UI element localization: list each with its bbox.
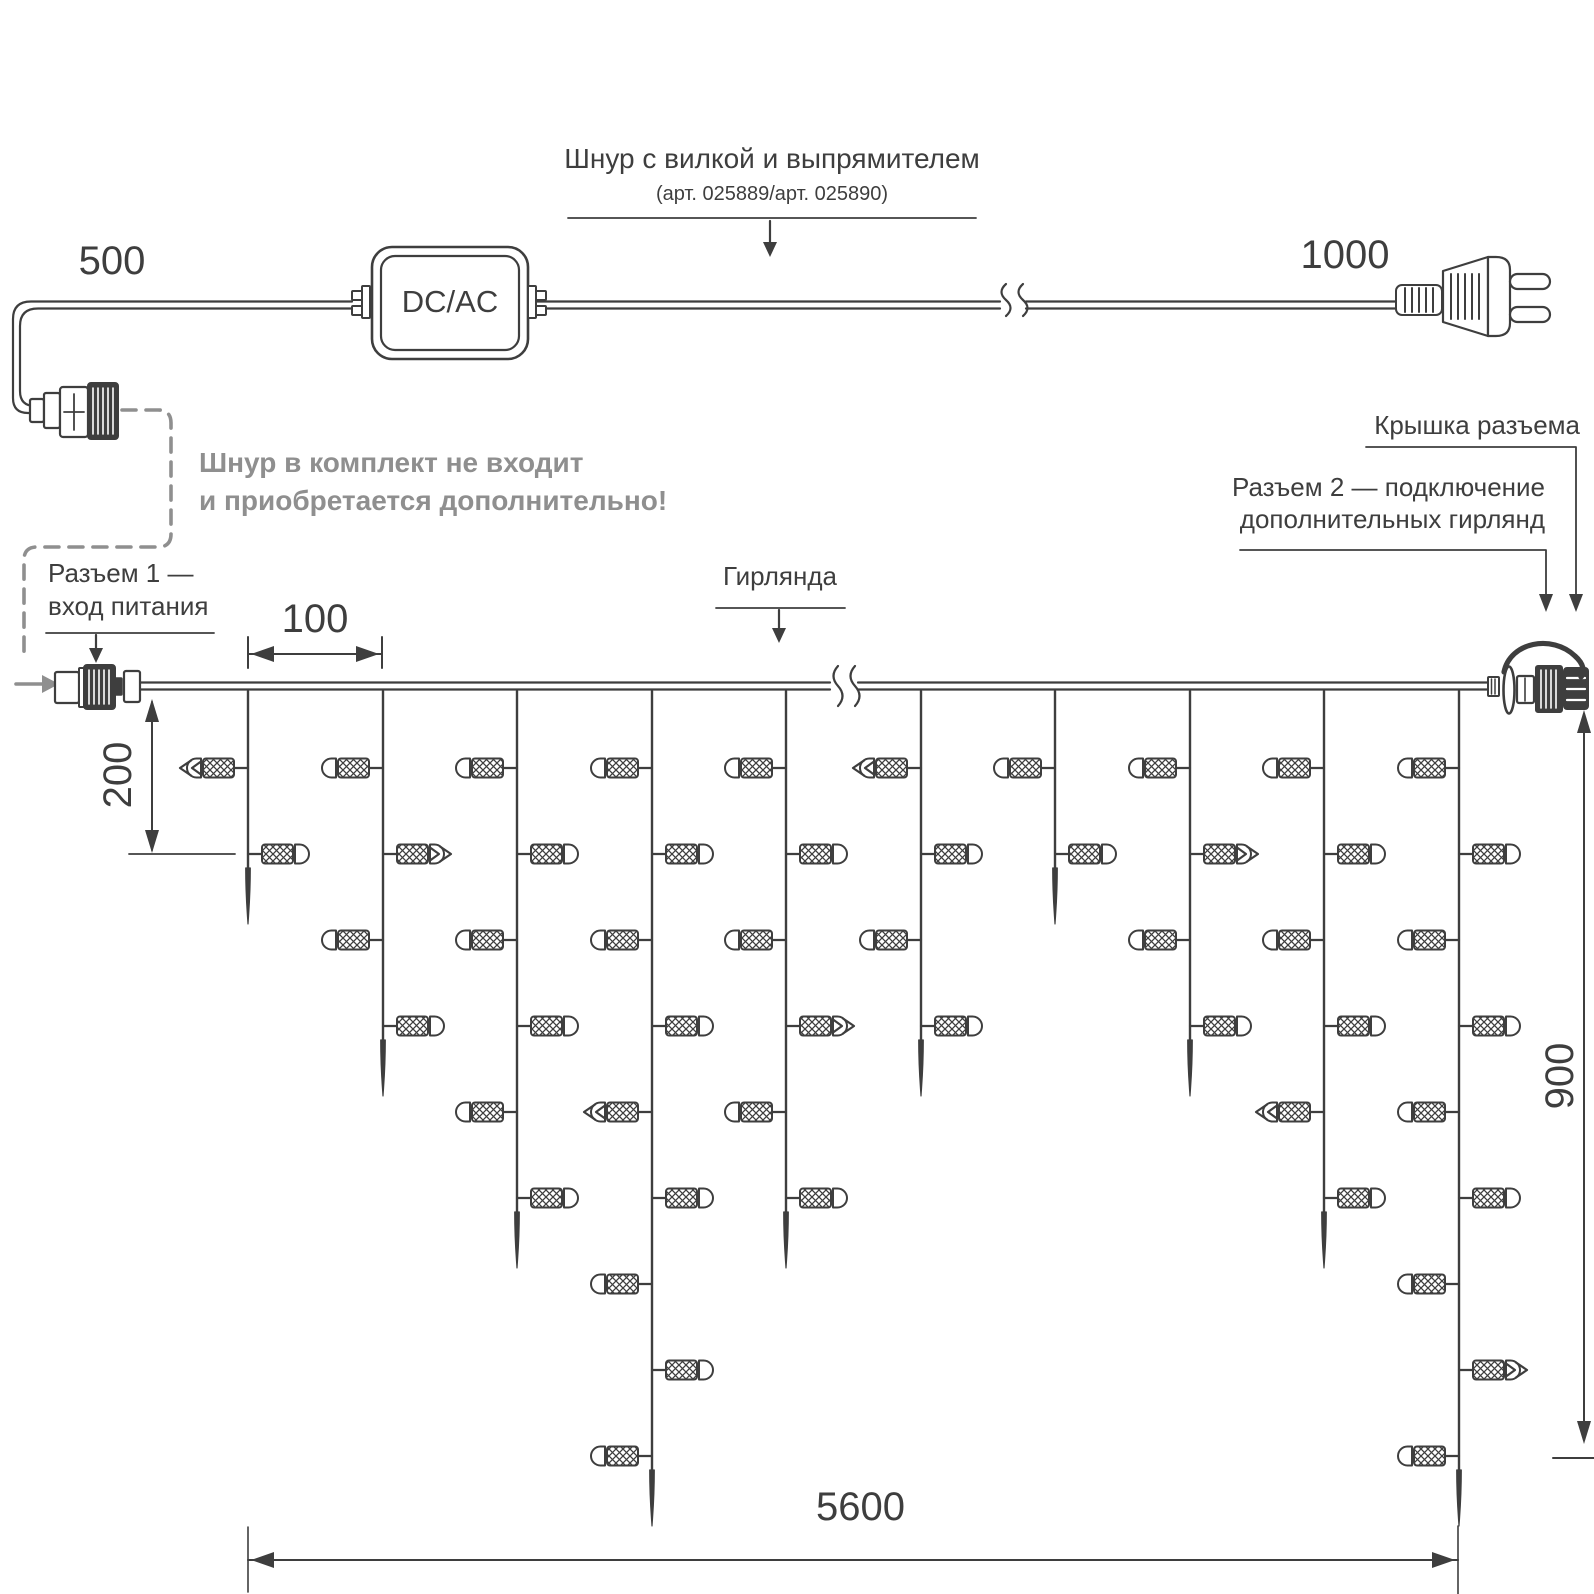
power-cord <box>13 284 1398 413</box>
garland-label: Гирлянда <box>704 563 856 590</box>
dimension-100 <box>248 637 382 668</box>
dim-200-label: 200 <box>97 715 139 835</box>
dim-5600-label: 5600 <box>778 1486 943 1528</box>
cord-title-label: Шнур с вилкой и выпрямителем <box>470 144 1074 173</box>
cord-label-leader <box>568 218 976 257</box>
connector1-label-line2: вход питания <box>48 593 208 620</box>
garland-drops <box>180 691 1527 1526</box>
cap-label: Крышка разъема <box>1330 412 1580 439</box>
connector-2-cap <box>1488 643 1588 713</box>
connector-1 <box>55 665 140 709</box>
connector1-label-line1: Разъем 1 — <box>48 560 194 587</box>
diagram-page: Шнур с вилкой и выпрямителем (арт. 02588… <box>0 0 1594 1594</box>
dim-1000-label: 1000 <box>1282 234 1408 276</box>
power-cord-connector <box>30 383 118 439</box>
cord-articles-label: (арт. 025889/арт. 025890) <box>470 184 1074 205</box>
connector2-leader <box>1240 550 1553 612</box>
dim-900-label: 900 <box>1539 1016 1581 1136</box>
power-plug <box>1396 257 1550 336</box>
connector2-label-line2: дополнительных гирлянд <box>1190 506 1545 533</box>
converter-label: DC/AC <box>372 286 528 319</box>
garland-leader <box>716 608 845 643</box>
dim-100-label: 100 <box>260 598 370 640</box>
connector2-label-line1: Разъем 2 — подключение <box>1190 474 1545 501</box>
dimension-5600 <box>248 1526 1458 1594</box>
dim-500-label: 500 <box>57 240 167 282</box>
note-line1: Шнур в комплект не входит <box>199 448 583 477</box>
garland-wire <box>140 666 1488 706</box>
connector1-leader <box>46 633 214 663</box>
note-line2: и приобретается дополнительно! <box>199 486 667 515</box>
